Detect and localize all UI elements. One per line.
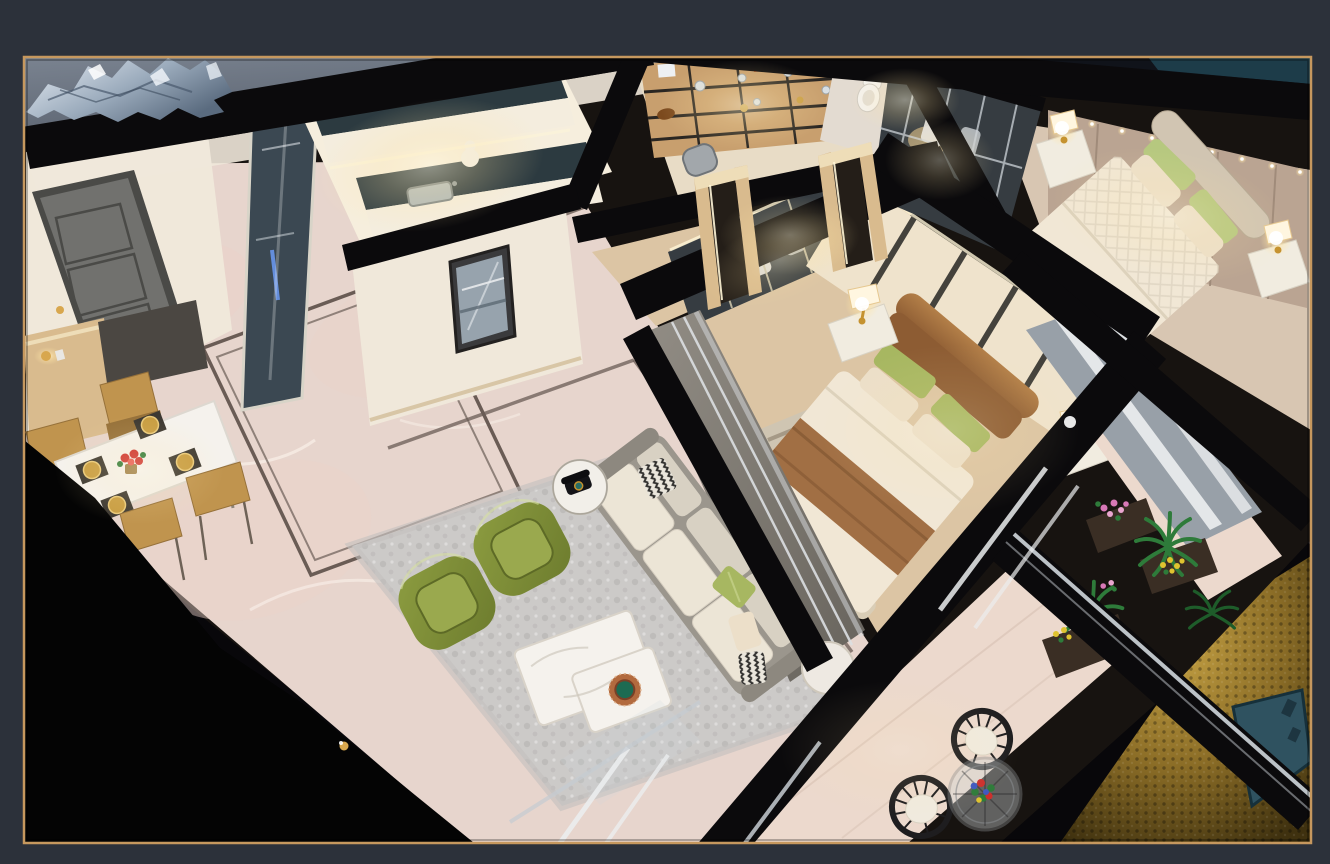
door-handle xyxy=(56,306,64,314)
apartment-model-photo xyxy=(0,0,1330,864)
telephone-side-table xyxy=(553,460,607,514)
lamp-core xyxy=(855,297,869,311)
lamp-core xyxy=(1055,121,1069,135)
closet-glow xyxy=(885,120,995,200)
lamp-core xyxy=(1269,231,1283,245)
photo-area xyxy=(22,23,1324,864)
books xyxy=(658,63,676,77)
dining-glow xyxy=(55,415,225,525)
patterned-pillow xyxy=(738,651,768,686)
framed-picture xyxy=(450,246,515,352)
patio-glow xyxy=(780,680,1020,820)
master-glow xyxy=(820,345,1080,515)
study-glow xyxy=(660,60,830,150)
lamp-core xyxy=(1064,416,1076,428)
gold-kettle xyxy=(41,351,51,361)
framed-photo-of-apartment-model xyxy=(0,0,1330,864)
